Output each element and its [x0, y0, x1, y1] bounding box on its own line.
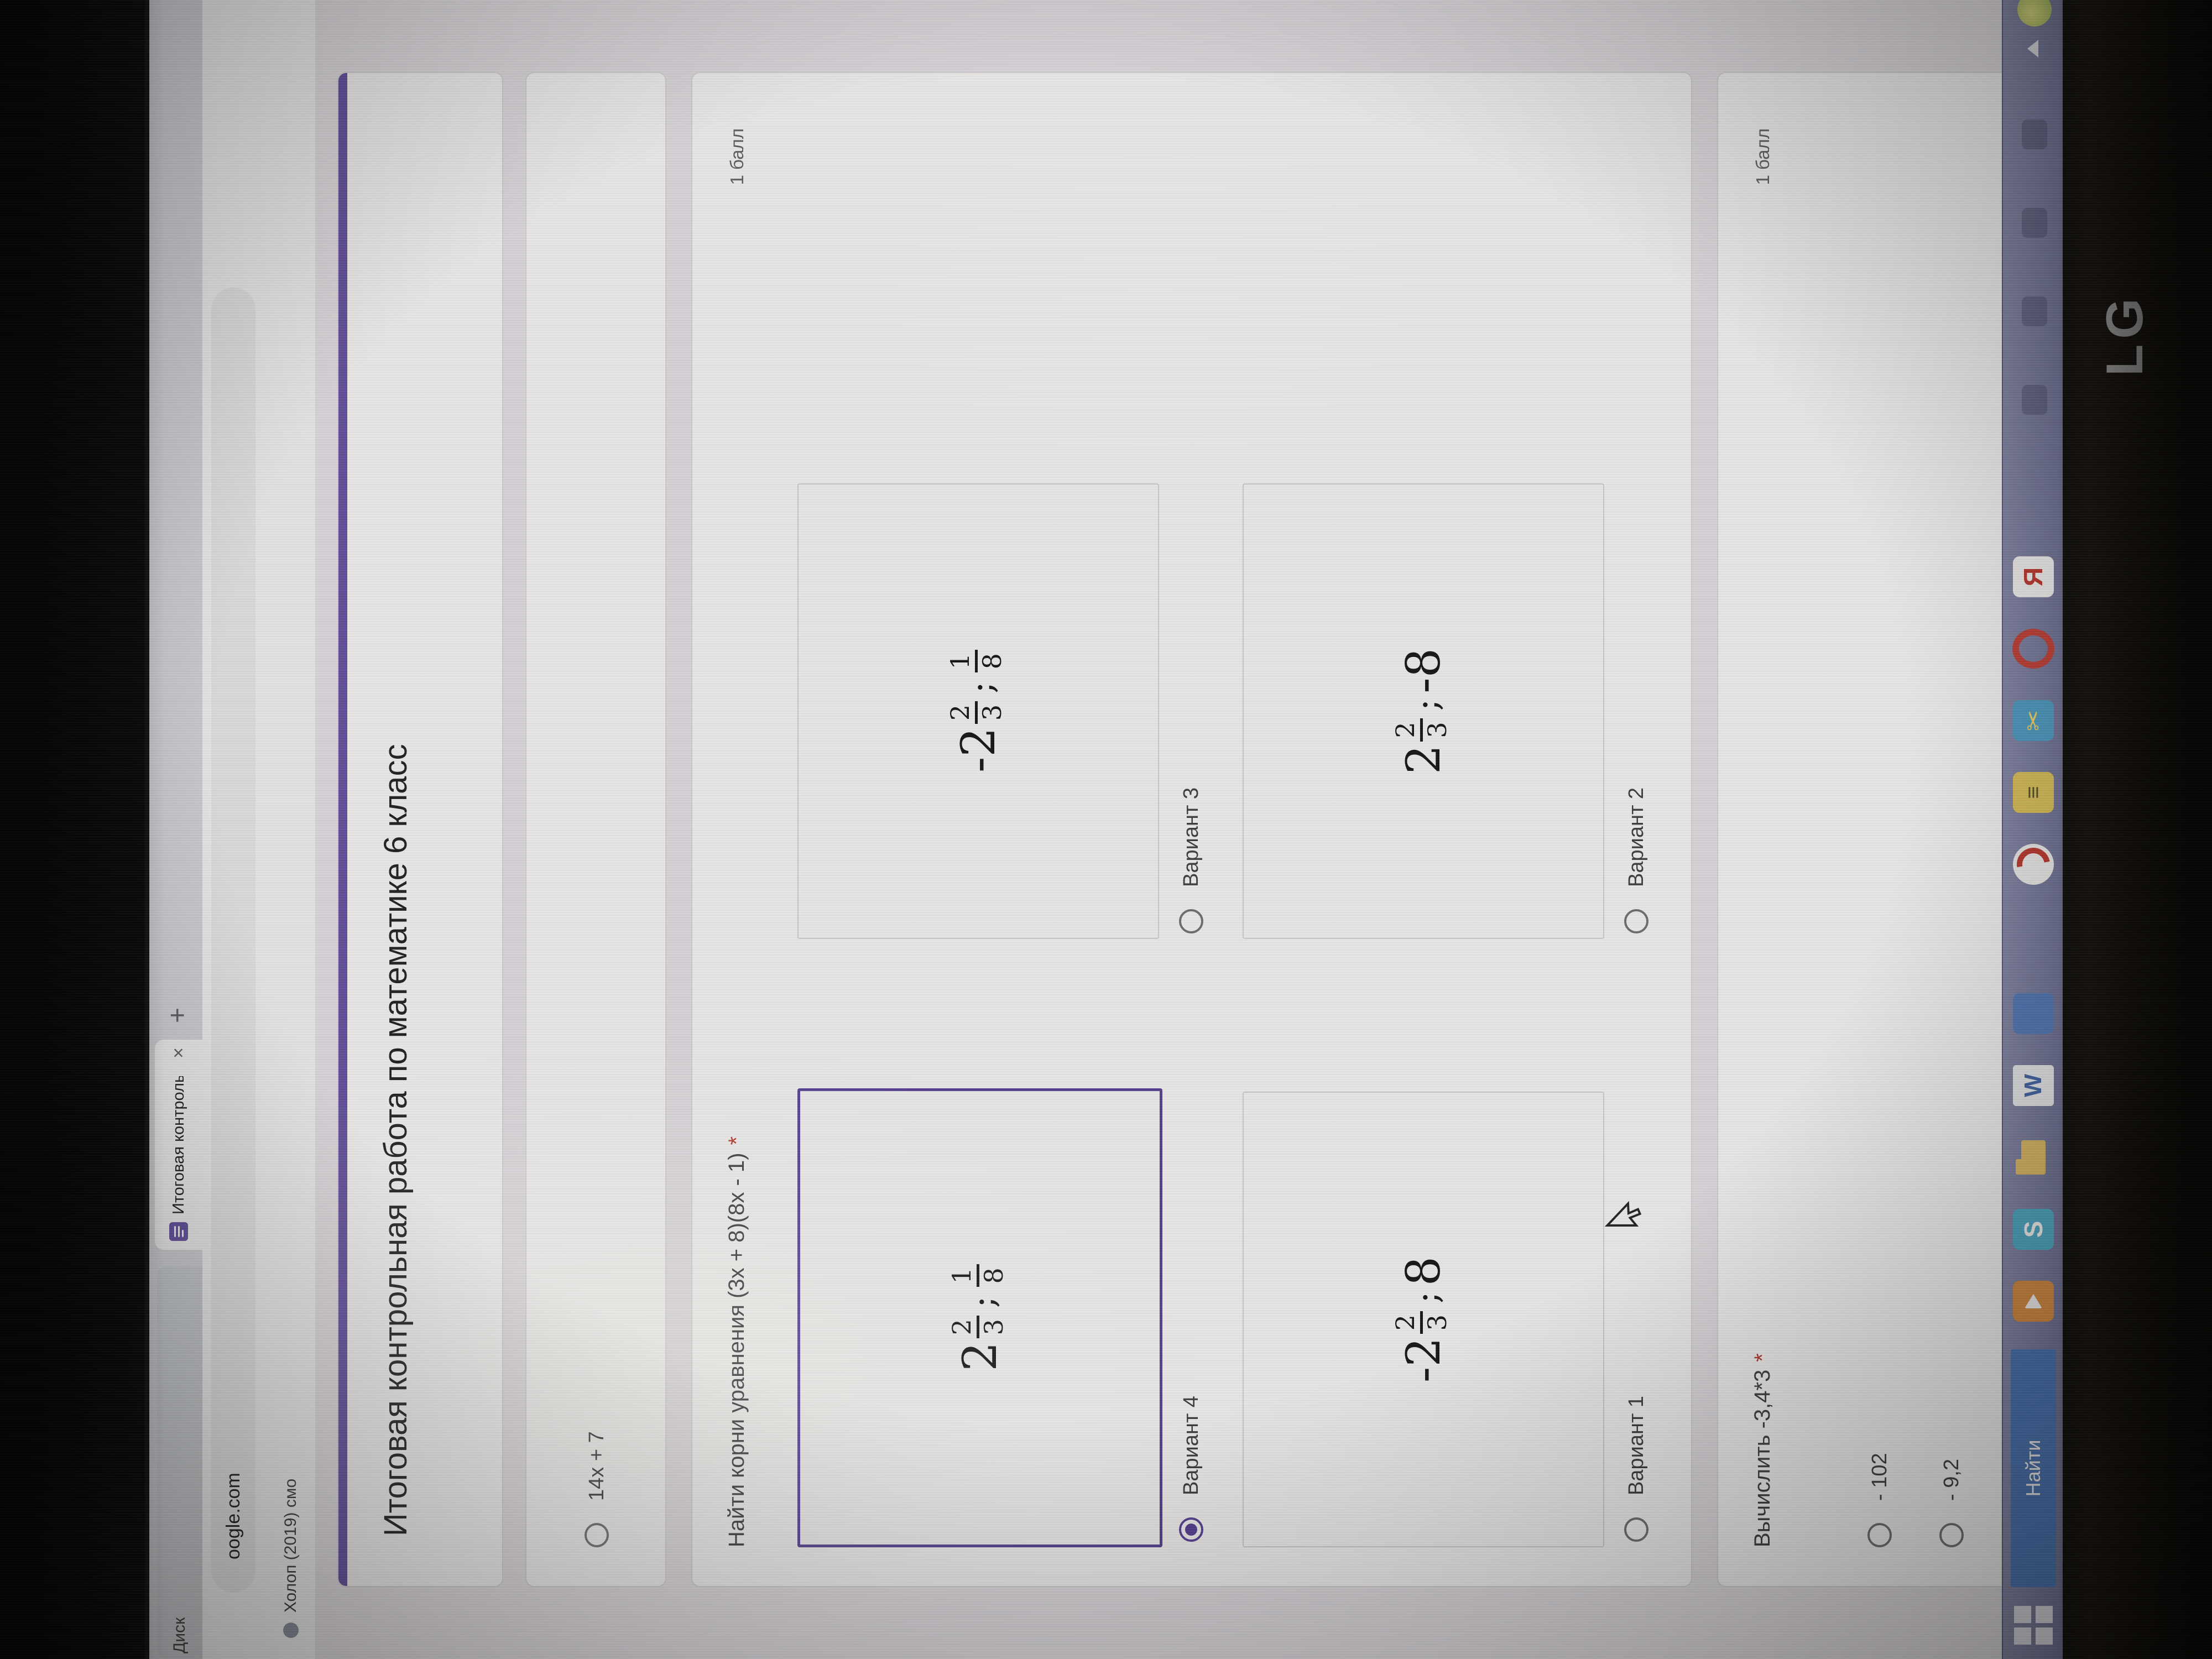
url-bar[interactable]: oogle.com	[211, 288, 255, 1593]
q2-required-asterisk: *	[724, 1136, 749, 1145]
photo-of-laptop-screen: Диск Итоговая контрольная × + oogle.com …	[0, 0, 2212, 1659]
q2-label-variant-4: Вариант 4	[1180, 1396, 1203, 1495]
q2-question-text: Найти корни уравнения (3x + 8)(8x - 1)*	[724, 1136, 749, 1547]
bookmark-label[interactable]: Холоп (2019) смо	[281, 1479, 300, 1613]
screen: Диск Итоговая контрольная × + oogle.com …	[149, 0, 2063, 1659]
mouse-cursor-icon	[1605, 1192, 1645, 1232]
q2-radio-variant-1[interactable]	[1624, 1517, 1648, 1542]
q2-radio-variant-3[interactable]	[1179, 909, 1203, 933]
taskbar-search-box[interactable]: Найти	[2011, 1349, 2056, 1587]
tray-icon-blur[interactable]	[2022, 208, 2047, 238]
file-explorer-folder-icon[interactable]	[2013, 1137, 2054, 1178]
q1-option-radio[interactable]	[585, 1523, 609, 1547]
q2-option-row-variant-3[interactable]: Вариант 3	[1179, 787, 1203, 933]
start-button-icon[interactable]	[2014, 1606, 2053, 1645]
question-1-card: 14x + 7	[525, 72, 666, 1587]
q2-label-variant-2: Вариант 2	[1625, 787, 1648, 887]
media-app-icon[interactable]: ≡	[2013, 772, 2054, 813]
url-text: oogle.com	[223, 1473, 244, 1559]
q3-question-text: Вычислить -3,4*3*	[1750, 1353, 1775, 1547]
browser-tab-strip: Диск Итоговая контрольная × +	[149, 0, 202, 1659]
tray-chevron-icon[interactable]	[2027, 40, 2038, 58]
blue-app-icon[interactable]	[2013, 993, 2054, 1034]
q2-radio-variant-4-selected[interactable]	[1179, 1517, 1203, 1542]
q2-label-variant-1: Вариант 1	[1625, 1396, 1648, 1495]
q2-option-image-variant-2[interactable]: 2 23 ; -8	[1243, 483, 1604, 939]
new-tab-button[interactable]: +	[157, 1008, 199, 1023]
tray-icon-blur[interactable]	[2022, 119, 2047, 149]
q2-option-image-variant-3[interactable]: -2 23 ; 18	[797, 483, 1159, 939]
tab-active[interactable]: Итоговая контрольная ×	[155, 1040, 202, 1250]
tab-close-icon[interactable]: ×	[168, 1047, 190, 1058]
word-document-icon[interactable]: W	[2013, 1065, 2054, 1106]
math-answer-variant-4: 2 23 ; 18	[950, 1264, 1010, 1371]
tab-disk[interactable]: Диск	[157, 1266, 202, 1659]
q3-required-asterisk: *	[1750, 1353, 1775, 1362]
math-answer-variant-1: -2 23 ; 8	[1394, 1256, 1454, 1383]
q2-option-row-variant-1[interactable]: Вариант 1	[1624, 1396, 1648, 1542]
laptop-brand-logo: LG	[2095, 293, 2154, 376]
q3-option-label-1: - 102	[1868, 1453, 1892, 1501]
q2-radio-variant-2[interactable]	[1624, 909, 1648, 933]
google-form-page: Итоговая контрольная работа по математик…	[315, 0, 2002, 1659]
orange-play-app-icon[interactable]	[2013, 1281, 2054, 1322]
q3-option-row-1[interactable]: - 102	[1867, 1453, 1892, 1547]
tray-icon-blur[interactable]	[2022, 296, 2047, 326]
q2-option-image-variant-1[interactable]: -2 23 ; 8	[1243, 1092, 1604, 1547]
yandex-icon[interactable]: Я	[2013, 556, 2054, 597]
q1-option-row[interactable]: 14x + 7	[585, 1431, 609, 1547]
browser-circle-icon[interactable]	[2013, 844, 2054, 885]
q2-option-row-variant-2[interactable]: Вариант 2	[1624, 787, 1648, 933]
opera-icon[interactable]	[2013, 628, 2054, 669]
q3-option-radio-1[interactable]	[1867, 1523, 1892, 1547]
bookmarks-bar: Холоп (2019) смо	[267, 0, 315, 1659]
q3-points-badge: 1 балл	[1752, 128, 1773, 185]
q2-option-image-variant-4[interactable]: 2 23 ; 18	[797, 1088, 1162, 1547]
bookmark-favicon-icon	[283, 1623, 299, 1638]
tab-active-label: Итоговая контрольная	[170, 1076, 188, 1214]
math-answer-variant-3: -2 23 ; 18	[948, 650, 1009, 773]
q3-option-radio-2[interactable]	[1939, 1523, 1964, 1547]
browser-toolbar: oogle.com	[202, 0, 268, 1659]
laptop-device: Диск Итоговая контрольная × + oogle.com …	[0, 0, 2212, 1659]
windows-taskbar: Найти S W ≡ ✂ Я	[2002, 0, 2063, 1659]
math-answer-variant-2: 2 23 ; -8	[1394, 648, 1454, 774]
tray-edge-icon[interactable]	[2017, 0, 2052, 27]
q2-option-row-variant-4[interactable]: Вариант 4	[1179, 1396, 1203, 1542]
snipping-tool-icon[interactable]: ✂	[2013, 700, 2054, 741]
form-title: Итоговая контрольная работа по математик…	[377, 744, 414, 1536]
form-header-card: Итоговая контрольная работа по математик…	[337, 72, 503, 1587]
question-3-card: 1 балл Вычислить -3,4*3* - 102 - 9,2	[1717, 72, 2002, 1587]
q2-label-variant-3: Вариант 3	[1180, 787, 1203, 887]
tray-icon-blur[interactable]	[2022, 385, 2047, 415]
q3-option-row-2[interactable]: - 9,2	[1939, 1459, 1964, 1547]
q1-option-label: 14x + 7	[585, 1431, 609, 1501]
skype-icon[interactable]: S	[2013, 1209, 2054, 1250]
question-2-card: 1 балл Найти корни уравнения (3x + 8)(8x…	[691, 72, 1692, 1587]
q2-points-badge: 1 балл	[727, 128, 748, 185]
search-label: Найти	[2022, 1440, 2045, 1497]
google-forms-favicon-icon	[169, 1222, 188, 1241]
form-accent-bar	[338, 73, 347, 1586]
tab-disk-label: Диск	[170, 1618, 189, 1653]
q3-option-label-2: - 9,2	[1940, 1459, 1964, 1501]
